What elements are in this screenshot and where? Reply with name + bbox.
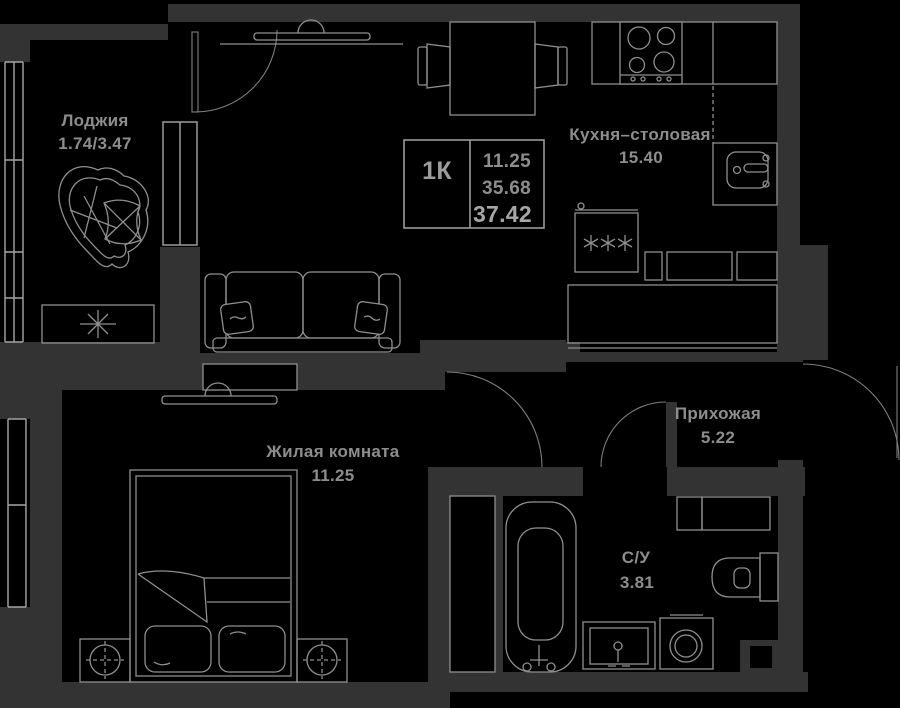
bath-shaft-opening [750, 646, 772, 668]
room-area-loggia: 1.74/3.47 [58, 134, 132, 153]
living-room-window [8, 419, 26, 607]
sofa-pillow [220, 301, 254, 335]
room-label-living: Жилая комната [265, 442, 399, 461]
spec-room-area: 11.25 [483, 151, 531, 172]
walls [0, 4, 828, 708]
room-label-kitchen: Кухня–столовая [569, 125, 710, 144]
spec-total-with-loggia: 37.42 [473, 201, 532, 227]
wall-entry-pier [777, 340, 803, 362]
chair-icon [418, 44, 450, 88]
floor-plan-svg: Лоджия 1.74/3.47 Кухня–столовая 15.40 Жи… [0, 0, 900, 708]
bathtub-icon [506, 502, 576, 672]
wall-living-left [30, 390, 62, 682]
nightstand [80, 639, 130, 682]
wall-right-bump [800, 245, 828, 360]
spec-total-area: 35.68 [482, 178, 531, 199]
tv-icon [220, 20, 403, 44]
sofa-pillow [354, 301, 388, 335]
wall-left-corner-bottom [0, 607, 30, 682]
room-area-hallway: 5.22 [701, 428, 735, 447]
loggia-window [5, 62, 23, 342]
wall-right-upper [777, 18, 800, 340]
wall-left-corner-mid [0, 390, 30, 419]
wall-left-corner-top [0, 40, 30, 62]
dining-table [450, 22, 535, 115]
spec-box: 1К 11.25 35.68 37.42 [404, 140, 544, 228]
wall-shaft-left [428, 496, 450, 672]
wall-bottom-bath [428, 672, 808, 692]
balcony-door [192, 30, 277, 112]
room-label-hallway: Прихожая [675, 404, 761, 423]
chair-icon [535, 44, 567, 88]
fridge-icon [575, 203, 638, 272]
washing-machine-icon [660, 615, 713, 669]
kitchen-counter-bottom [568, 285, 777, 348]
nightstand [297, 639, 347, 682]
living-fixtures [80, 364, 347, 682]
sofa-icon [205, 272, 400, 352]
wall-top-main [168, 4, 800, 22]
room-area-living: 11.25 [311, 466, 354, 485]
tv-stand [203, 364, 297, 390]
spec-layout-type: 1К [422, 157, 452, 185]
wall-shaft-right [495, 496, 503, 672]
wall-kitchen-hall [566, 352, 778, 362]
loggia-fixtures [42, 167, 154, 343]
room-area-kitchen: 15.40 [619, 148, 663, 167]
room-label-bathroom: С/У [622, 548, 651, 567]
bathroom-shelf [677, 497, 770, 530]
bed-pillow [145, 626, 211, 672]
wall-bottom-living [0, 682, 450, 708]
wall-top-loggia [0, 24, 168, 40]
wall-corridor-top [420, 340, 566, 372]
shaft-outline [450, 496, 495, 672]
ac-unit-icon [42, 305, 154, 343]
living-room-door [447, 372, 542, 467]
room-area-bathroom: 3.81 [620, 573, 654, 592]
bed-pillow [219, 626, 285, 672]
toilet-icon [712, 553, 778, 601]
entry-door [803, 364, 899, 460]
kitchen-sink-icon [713, 86, 777, 205]
bath-door-gap [583, 467, 667, 496]
snowflake-icon [584, 235, 632, 251]
plant-decor-icon [59, 167, 148, 268]
bathroom-door [601, 402, 666, 467]
floor-plan: Лоджия 1.74/3.47 Кухня–столовая 15.40 Жи… [0, 0, 900, 708]
wall-loggia-bottom [0, 342, 200, 390]
bed-icon [130, 470, 297, 682]
loggia-partition-window [163, 122, 197, 245]
room-label-loggia: Лоджия [61, 111, 128, 130]
kitchen-cabinets [645, 252, 777, 280]
stove-icon [620, 22, 682, 84]
wall-loggia-partition-lower [160, 247, 200, 345]
bathroom-sink-icon [583, 622, 655, 669]
